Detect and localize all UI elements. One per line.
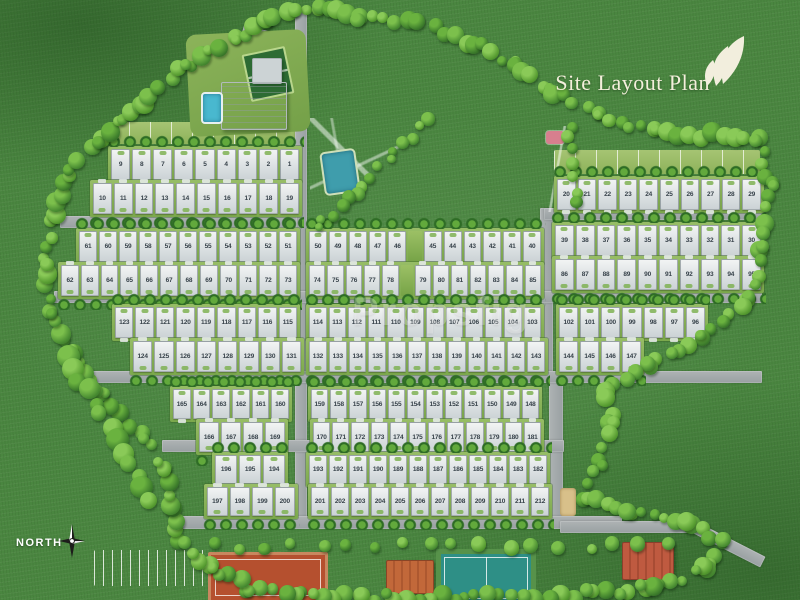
plot-102[interactable]: 102 <box>559 307 578 338</box>
plot-205[interactable]: 205 <box>391 487 409 516</box>
tree <box>596 442 607 453</box>
plot-165[interactable]: 165 <box>173 389 191 419</box>
tree <box>209 537 221 549</box>
tree <box>353 587 370 600</box>
plot-126[interactable]: 126 <box>176 341 195 372</box>
tree <box>187 548 199 560</box>
plot-19[interactable]: 19 <box>280 183 299 214</box>
plot-69[interactable]: 69 <box>200 265 218 296</box>
plot-104[interactable]: 104 <box>504 307 522 338</box>
plot-183[interactable]: 183 <box>509 455 527 484</box>
plot-52[interactable]: 52 <box>259 231 277 262</box>
plot-31[interactable]: 31 <box>721 225 740 256</box>
plot-73[interactable]: 73 <box>279 265 297 296</box>
plot-204[interactable]: 204 <box>371 487 389 516</box>
tree <box>605 536 620 551</box>
plot-201[interactable]: 201 <box>311 487 329 516</box>
plot-77[interactable]: 77 <box>364 265 380 296</box>
plot-79[interactable]: 79 <box>415 265 431 296</box>
plot-105[interactable]: 105 <box>485 307 503 338</box>
plot-48[interactable]: 48 <box>349 231 367 262</box>
tree <box>587 465 598 476</box>
tree <box>666 347 678 359</box>
plot-137[interactable]: 137 <box>408 341 426 372</box>
plot-135[interactable]: 135 <box>368 341 386 372</box>
plot-156[interactable]: 156 <box>369 389 386 419</box>
plot-106[interactable]: 106 <box>465 307 483 338</box>
tree <box>750 279 761 290</box>
plot-3[interactable]: 3 <box>238 149 257 180</box>
plot-40[interactable]: 40 <box>523 231 541 262</box>
plot-68[interactable]: 68 <box>180 265 198 296</box>
tree <box>408 13 425 30</box>
tree <box>677 576 687 586</box>
plot-101[interactable]: 101 <box>580 307 599 338</box>
plot-145[interactable]: 145 <box>580 341 599 372</box>
plot-132[interactable]: 132 <box>309 341 327 372</box>
plot-70[interactable]: 70 <box>220 265 238 296</box>
plot-196[interactable]: 196 <box>215 455 237 484</box>
plot-54[interactable]: 54 <box>219 231 237 262</box>
brand-logo-icon <box>698 34 750 95</box>
plot-4[interactable]: 4 <box>217 149 236 180</box>
tree <box>301 5 312 16</box>
plot-207[interactable]: 207 <box>431 487 449 516</box>
plot-71[interactable]: 71 <box>239 265 257 296</box>
tree <box>636 507 646 517</box>
plot-97[interactable]: 97 <box>665 307 684 338</box>
tree <box>258 543 271 556</box>
plot-24[interactable]: 24 <box>639 179 658 210</box>
plot-108[interactable]: 108 <box>426 307 444 338</box>
tree <box>397 537 407 547</box>
tree <box>760 146 770 156</box>
plot-82[interactable]: 82 <box>470 265 486 296</box>
plot-1[interactable]: 1 <box>280 149 299 180</box>
tree <box>521 66 538 83</box>
tree <box>567 171 578 182</box>
plot-122[interactable]: 122 <box>135 307 153 338</box>
plot-row: 10210110099989796 <box>556 304 708 341</box>
tree <box>596 388 614 406</box>
tree <box>482 43 499 60</box>
plot-37[interactable]: 37 <box>597 225 616 256</box>
north-label: NORTH <box>16 537 63 549</box>
plot-198[interactable]: 198 <box>230 487 251 516</box>
tree <box>756 226 770 240</box>
tree <box>285 538 295 548</box>
plot-50[interactable]: 50 <box>309 231 327 262</box>
plot-117[interactable]: 117 <box>238 307 256 338</box>
plot-100[interactable]: 100 <box>601 307 620 338</box>
plot-115[interactable]: 115 <box>279 307 297 338</box>
plot-92[interactable]: 92 <box>680 259 699 290</box>
plot-109[interactable]: 109 <box>407 307 425 338</box>
plot-64[interactable]: 64 <box>101 265 119 296</box>
plot-185[interactable]: 185 <box>469 455 487 484</box>
plot-12[interactable]: 12 <box>135 183 154 214</box>
plot-row: 197198199200 <box>204 484 298 519</box>
plot-128[interactable]: 128 <box>218 341 237 372</box>
plot-119[interactable]: 119 <box>197 307 215 338</box>
plot-16[interactable]: 16 <box>218 183 237 214</box>
tree <box>140 492 157 509</box>
plot-55[interactable]: 55 <box>199 231 217 262</box>
plot-149[interactable]: 149 <box>503 389 520 419</box>
plot-13[interactable]: 13 <box>155 183 174 214</box>
tree <box>51 324 71 344</box>
plot-25[interactable]: 25 <box>660 179 679 210</box>
plot-9[interactable]: 9 <box>111 149 130 180</box>
tree <box>368 595 381 600</box>
plot-155[interactable]: 155 <box>388 389 405 419</box>
plot-162[interactable]: 162 <box>232 389 250 419</box>
plot-57[interactable]: 57 <box>159 231 177 262</box>
plot-44[interactable]: 44 <box>444 231 462 262</box>
plot-17[interactable]: 17 <box>239 183 258 214</box>
plot-33[interactable]: 33 <box>680 225 699 256</box>
tree <box>479 585 496 600</box>
plot-164[interactable]: 164 <box>193 389 211 419</box>
plot-row: 5049484746454443424140 <box>306 228 544 265</box>
plot-85[interactable]: 85 <box>525 265 541 296</box>
plot-72[interactable]: 72 <box>259 265 277 296</box>
plot-160[interactable]: 160 <box>271 389 289 419</box>
tree <box>234 544 245 555</box>
plot-211[interactable]: 211 <box>511 487 529 516</box>
tree <box>120 455 137 472</box>
tree <box>340 539 352 551</box>
swimming-pool <box>201 92 223 124</box>
tree <box>337 199 349 211</box>
plot-107[interactable]: 107 <box>446 307 464 338</box>
plot-150[interactable]: 150 <box>484 389 501 419</box>
plot-163[interactable]: 163 <box>212 389 230 419</box>
plot-131[interactable]: 131 <box>282 341 301 372</box>
plot-187[interactable]: 187 <box>429 455 447 484</box>
tree <box>387 15 402 30</box>
tree <box>582 478 593 489</box>
plot-65[interactable]: 65 <box>120 265 138 296</box>
plot-84[interactable]: 84 <box>506 265 522 296</box>
plot-35[interactable]: 35 <box>638 225 657 256</box>
plot-23[interactable]: 23 <box>619 179 638 210</box>
plot-209[interactable]: 209 <box>471 487 489 516</box>
tree <box>662 573 678 589</box>
plot-row: 193192191190189188187186185184183182 <box>306 452 550 487</box>
plot-18[interactable]: 18 <box>259 183 278 214</box>
plot-113[interactable]: 113 <box>329 307 347 338</box>
clubhouse-annex <box>252 58 282 84</box>
plot-10[interactable]: 10 <box>93 183 112 214</box>
plot-206[interactable]: 206 <box>411 487 429 516</box>
plot-row: 10111213141516171819 <box>90 180 302 217</box>
tree <box>618 503 636 521</box>
compass-icon <box>57 523 87 564</box>
tree <box>635 579 646 590</box>
plot-row: 165164163162161160 <box>170 386 292 422</box>
plot-61[interactable]: 61 <box>79 231 97 262</box>
plot-98[interactable]: 98 <box>644 307 663 338</box>
plot-63[interactable]: 63 <box>81 265 99 296</box>
plot-184[interactable]: 184 <box>489 455 507 484</box>
tree <box>620 372 635 387</box>
tree <box>677 512 696 531</box>
plot-157[interactable]: 157 <box>349 389 366 419</box>
plot-146[interactable]: 146 <box>601 341 620 372</box>
plot-83[interactable]: 83 <box>488 265 504 296</box>
plot-148[interactable]: 148 <box>522 389 539 419</box>
plot-94[interactable]: 94 <box>721 259 740 290</box>
plot-51[interactable]: 51 <box>279 231 297 262</box>
tree <box>319 540 331 552</box>
tree <box>565 97 577 109</box>
plot-row: 123122121120119118117116115 <box>112 304 300 341</box>
plot-197[interactable]: 197 <box>207 487 228 516</box>
tree <box>46 232 57 243</box>
plot-7[interactable]: 7 <box>153 149 172 180</box>
tree <box>614 588 626 600</box>
tree <box>407 133 419 145</box>
plot-139[interactable]: 139 <box>448 341 466 372</box>
tree <box>570 196 583 209</box>
plot-151[interactable]: 151 <box>464 389 481 419</box>
plot-194[interactable]: 194 <box>263 455 285 484</box>
plot-56[interactable]: 56 <box>179 231 197 262</box>
plot-99[interactable]: 99 <box>622 307 641 338</box>
plot-159[interactable]: 159 <box>311 389 328 419</box>
plot-47[interactable]: 47 <box>369 231 387 262</box>
plot-103[interactable]: 103 <box>524 307 542 338</box>
tree <box>717 315 730 328</box>
plot-66[interactable]: 66 <box>140 265 158 296</box>
plot-88[interactable]: 88 <box>597 259 616 290</box>
tree <box>46 308 57 319</box>
plot-32[interactable]: 32 <box>701 225 720 256</box>
plot-120[interactable]: 120 <box>176 307 194 338</box>
plot-121[interactable]: 121 <box>156 307 174 338</box>
plot-199[interactable]: 199 <box>252 487 273 516</box>
plot-58[interactable]: 58 <box>139 231 157 262</box>
plot-129[interactable]: 129 <box>239 341 258 372</box>
tree <box>630 536 645 551</box>
plot-49[interactable]: 49 <box>329 231 347 262</box>
plot-202[interactable]: 202 <box>331 487 349 516</box>
plot-144[interactable]: 144 <box>559 341 578 372</box>
plot-112[interactable]: 112 <box>348 307 366 338</box>
plot-43[interactable]: 43 <box>464 231 482 262</box>
plot-133[interactable]: 133 <box>329 341 347 372</box>
tree <box>425 537 438 550</box>
plot-203[interactable]: 203 <box>351 487 369 516</box>
plot-153[interactable]: 153 <box>426 389 443 419</box>
plot-210[interactable]: 210 <box>491 487 509 516</box>
plot-143[interactable]: 143 <box>527 341 545 372</box>
plot-90[interactable]: 90 <box>638 259 657 290</box>
tree <box>207 562 218 573</box>
plot-row: 196195194 <box>212 452 288 487</box>
plot-11[interactable]: 11 <box>114 183 133 214</box>
plot-152[interactable]: 152 <box>445 389 462 419</box>
plot-91[interactable]: 91 <box>659 259 678 290</box>
tree <box>623 122 634 133</box>
tree <box>756 240 769 253</box>
tree <box>68 152 85 169</box>
plot-62[interactable]: 62 <box>61 265 79 296</box>
plot-38[interactable]: 38 <box>576 225 595 256</box>
tree <box>180 59 191 70</box>
tree <box>662 537 675 550</box>
plot-190[interactable]: 190 <box>369 455 387 484</box>
tree <box>749 134 762 147</box>
tree <box>736 131 751 146</box>
site-layout-plan: 9876543211011121314151617181920212223242… <box>0 0 800 600</box>
tree <box>91 405 106 420</box>
plot-row: 6160595857565554535251 <box>76 228 300 265</box>
plot-111[interactable]: 111 <box>368 307 386 338</box>
plot-row: 124125126127128129130131 <box>130 338 304 375</box>
plot-93[interactable]: 93 <box>701 259 720 290</box>
plot-2[interactable]: 2 <box>259 149 278 180</box>
plot-14[interactable]: 14 <box>176 183 195 214</box>
tree <box>367 10 379 22</box>
plot-60[interactable]: 60 <box>99 231 117 262</box>
plot-125[interactable]: 125 <box>154 341 173 372</box>
plot-138[interactable]: 138 <box>428 341 446 372</box>
plot-208[interactable]: 208 <box>451 487 469 516</box>
tree <box>715 532 730 547</box>
tree <box>150 80 165 95</box>
plot-142[interactable]: 142 <box>507 341 525 372</box>
tree <box>597 581 615 599</box>
plot-154[interactable]: 154 <box>407 389 424 419</box>
plot-140[interactable]: 140 <box>468 341 486 372</box>
plot-193[interactable]: 193 <box>309 455 327 484</box>
plot-59[interactable]: 59 <box>119 231 137 262</box>
plot-212[interactable]: 212 <box>531 487 549 516</box>
plot-116[interactable]: 116 <box>258 307 276 338</box>
plot-192[interactable]: 192 <box>329 455 347 484</box>
tree <box>381 588 392 599</box>
plot-45[interactable]: 45 <box>424 231 442 262</box>
plot-26[interactable]: 26 <box>681 179 700 210</box>
tree <box>587 544 597 554</box>
plot-195[interactable]: 195 <box>239 455 261 484</box>
plot-161[interactable]: 161 <box>252 389 270 419</box>
clubhouse-building <box>221 82 287 130</box>
plot-200[interactable]: 200 <box>275 487 296 516</box>
plot-22[interactable]: 22 <box>598 179 617 210</box>
plot-127[interactable]: 127 <box>197 341 216 372</box>
plot-74[interactable]: 74 <box>309 265 325 296</box>
plot-41[interactable]: 41 <box>503 231 521 262</box>
tree <box>138 433 149 444</box>
plot-row: 86878889909192939495 <box>552 256 764 293</box>
plot-134[interactable]: 134 <box>349 341 367 372</box>
tree <box>425 593 437 600</box>
tree <box>497 56 507 66</box>
tree <box>504 540 519 555</box>
plot-78[interactable]: 78 <box>382 265 398 296</box>
plot-27[interactable]: 27 <box>701 179 720 210</box>
plot-182[interactable]: 182 <box>529 455 547 484</box>
tree <box>760 201 771 212</box>
tree <box>551 541 565 555</box>
plot-114[interactable]: 114 <box>309 307 327 338</box>
plot-86[interactable]: 86 <box>555 259 574 290</box>
plot-row: 39383736353433323130 <box>552 222 764 259</box>
plot-row: 114113112111110109108107106105104103 <box>306 304 544 341</box>
plot-36[interactable]: 36 <box>617 225 636 256</box>
plot-80[interactable]: 80 <box>433 265 449 296</box>
plot-row: 987654321 <box>108 146 302 183</box>
plot-row: 20212223242526272829 <box>554 176 764 213</box>
plot-189[interactable]: 189 <box>389 455 407 484</box>
plot-118[interactable]: 118 <box>217 307 235 338</box>
tree <box>566 157 578 169</box>
plot-158[interactable]: 158 <box>330 389 347 419</box>
tree <box>644 577 663 596</box>
plot-row: 201202203204205206207208209210211212 <box>308 484 552 519</box>
tree <box>691 565 701 575</box>
plot-124[interactable]: 124 <box>133 341 152 372</box>
tree <box>387 155 396 164</box>
plot-188[interactable]: 188 <box>409 455 427 484</box>
plot-75[interactable]: 75 <box>327 265 343 296</box>
plot-110[interactable]: 110 <box>387 307 405 338</box>
tree <box>350 13 364 27</box>
tree <box>267 583 278 594</box>
tree <box>396 136 409 149</box>
tree <box>178 536 191 549</box>
tree <box>372 161 382 171</box>
plot-67[interactable]: 67 <box>160 265 178 296</box>
plot-87[interactable]: 87 <box>576 259 595 290</box>
plot-76[interactable]: 76 <box>346 265 362 296</box>
plot-53[interactable]: 53 <box>239 231 257 262</box>
plot-186[interactable]: 186 <box>449 455 467 484</box>
tree <box>370 542 381 553</box>
plot-81[interactable]: 81 <box>451 265 467 296</box>
plot-8[interactable]: 8 <box>132 149 151 180</box>
plot-191[interactable]: 191 <box>349 455 367 484</box>
page-title: Site Layout Plan <box>555 70 710 96</box>
tree <box>734 298 752 316</box>
plot-29[interactable]: 29 <box>742 179 761 210</box>
tree <box>601 425 618 442</box>
plot-141[interactable]: 141 <box>487 341 505 372</box>
plot-row: 132133134135136137138139140141142143 <box>306 338 548 375</box>
plot-5[interactable]: 5 <box>195 149 214 180</box>
plot-136[interactable]: 136 <box>388 341 406 372</box>
plot-6[interactable]: 6 <box>174 149 193 180</box>
tree <box>636 120 646 130</box>
plot-46[interactable]: 46 <box>388 231 406 262</box>
plot-34[interactable]: 34 <box>659 225 678 256</box>
plot-89[interactable]: 89 <box>617 259 636 290</box>
plot-130[interactable]: 130 <box>261 341 280 372</box>
tree <box>755 254 767 266</box>
tree <box>279 585 297 600</box>
plot-28[interactable]: 28 <box>722 179 741 210</box>
plot-42[interactable]: 42 <box>483 231 501 262</box>
plot-123[interactable]: 123 <box>115 307 133 338</box>
tree <box>415 121 424 130</box>
plot-15[interactable]: 15 <box>197 183 216 214</box>
sand-pit <box>560 488 576 516</box>
plot-39[interactable]: 39 <box>555 225 574 256</box>
sports-pavilion <box>386 560 434 594</box>
